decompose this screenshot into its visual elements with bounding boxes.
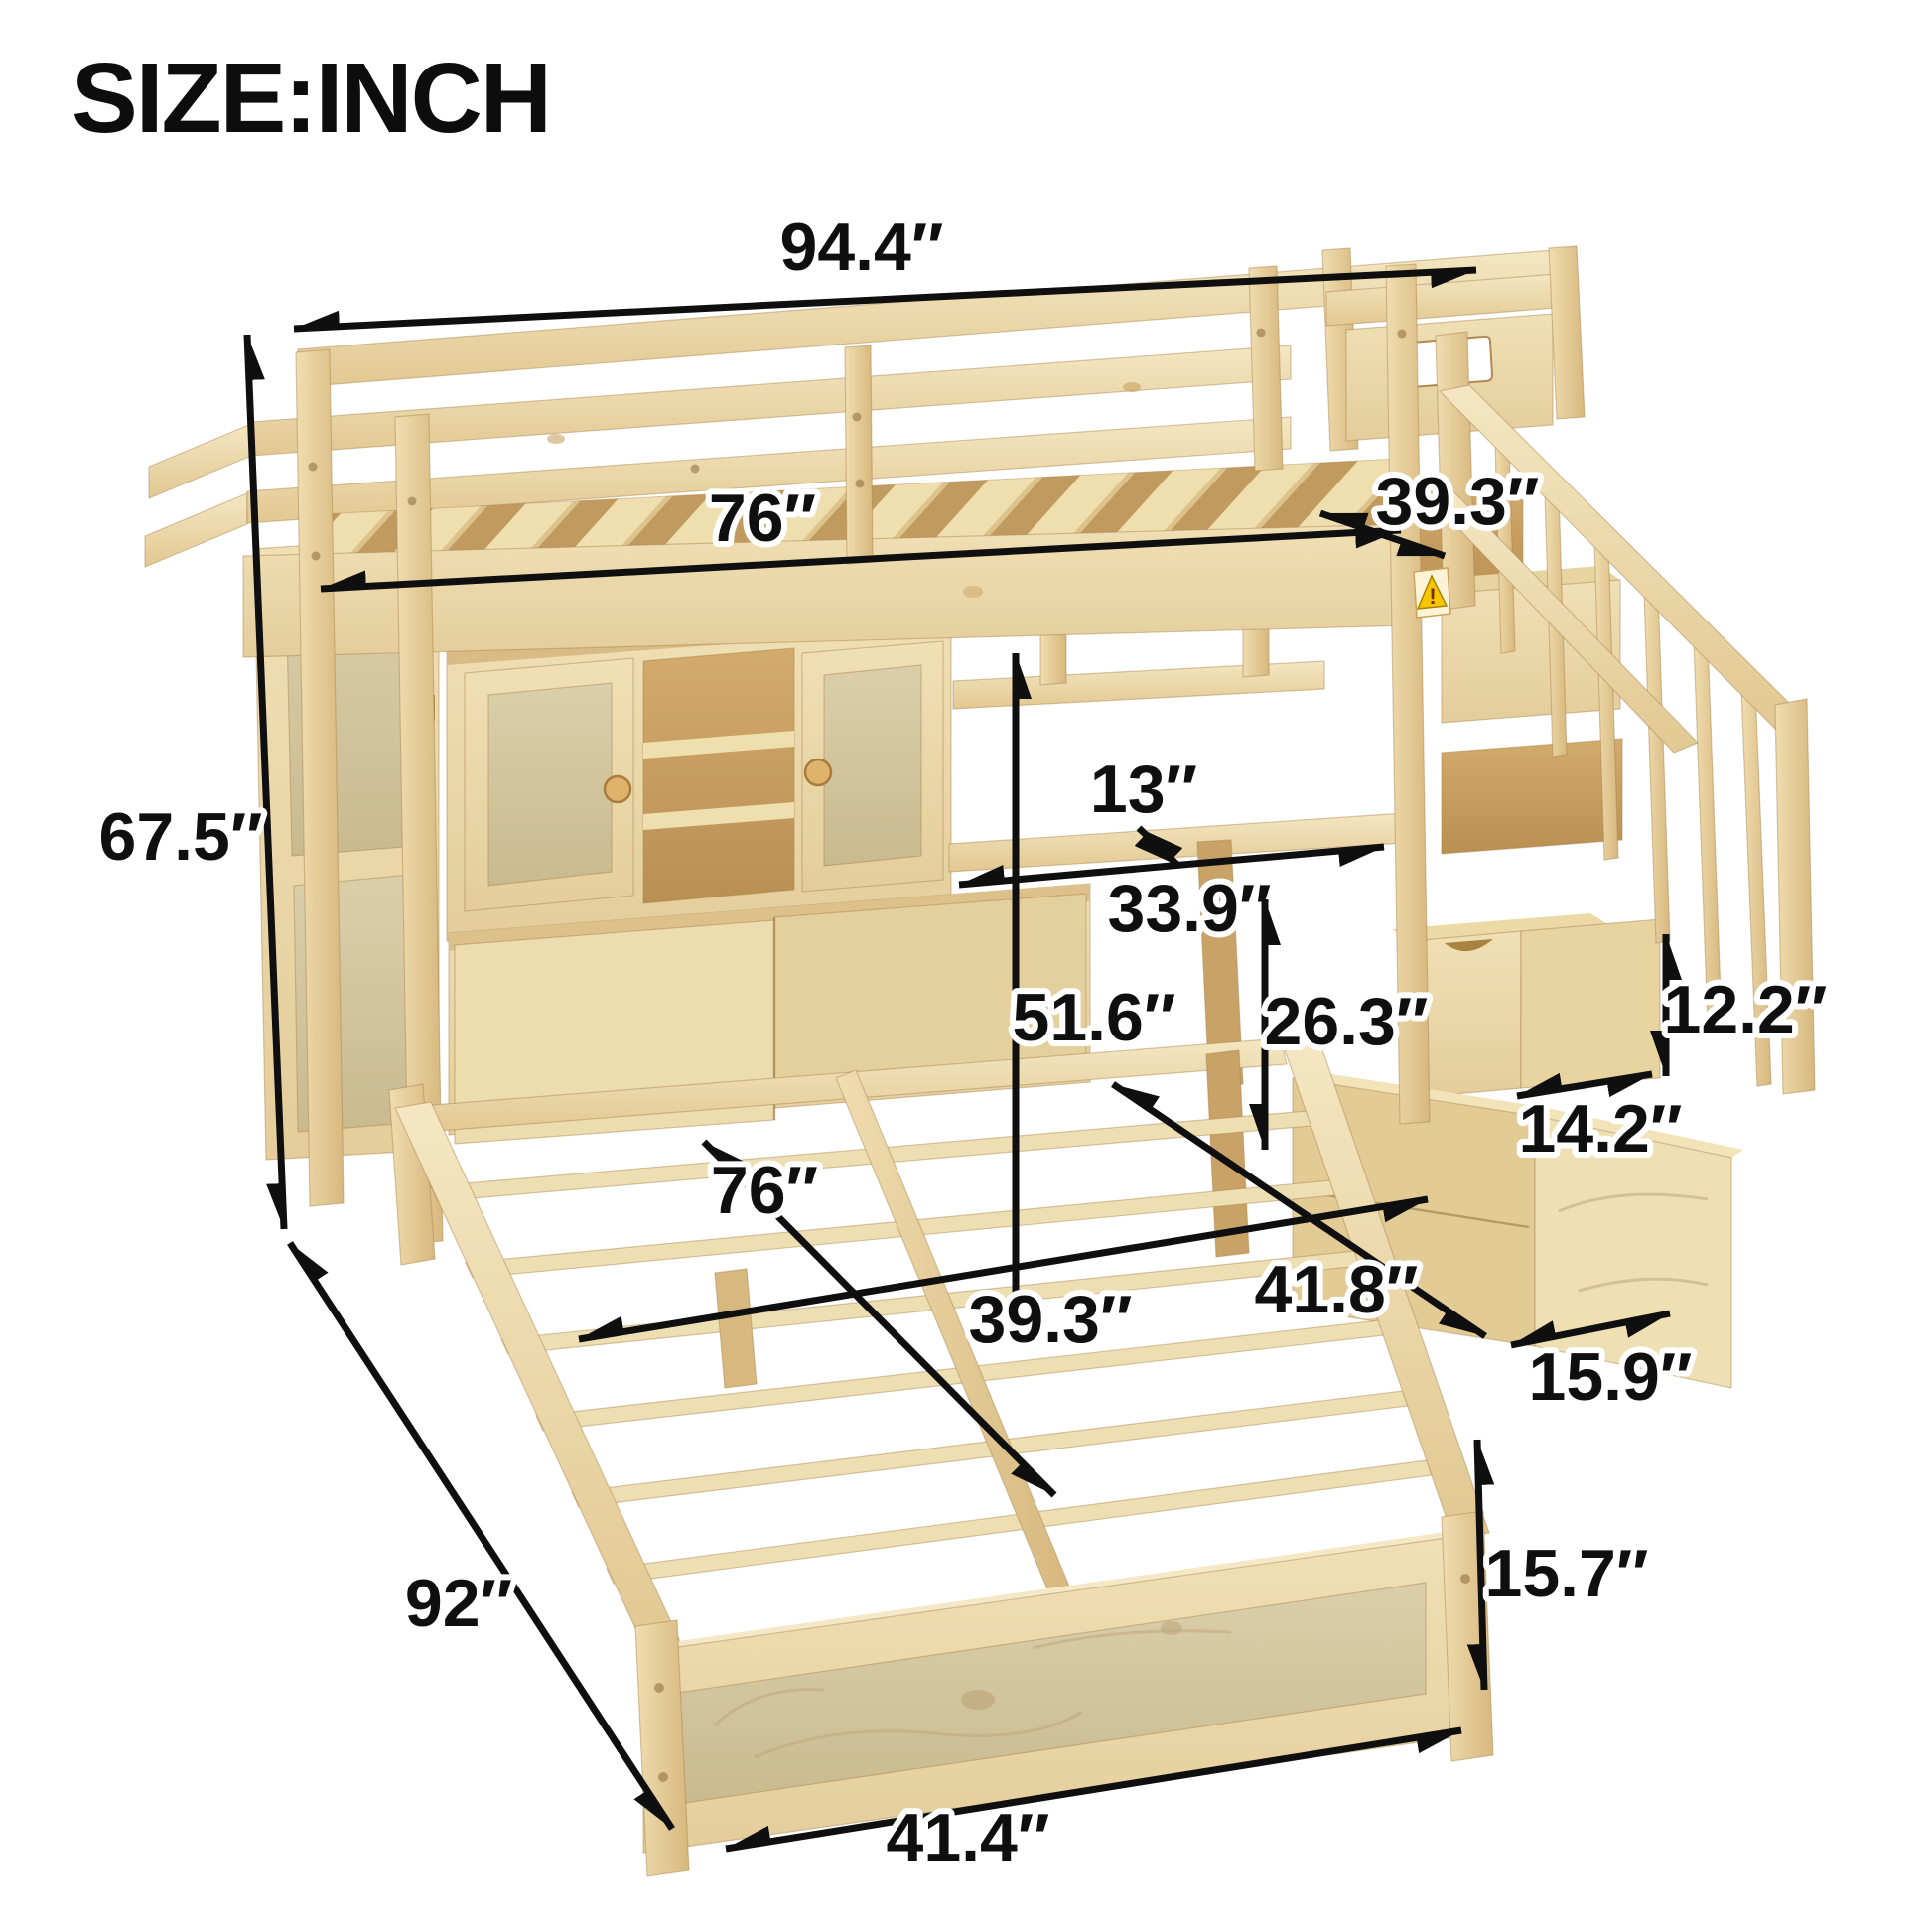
screw bbox=[408, 497, 417, 506]
loft-post-inner-right bbox=[1249, 266, 1283, 471]
dim-label: 33.9″ bbox=[1108, 871, 1272, 946]
dim-label: 76″ bbox=[709, 481, 816, 556]
hutch-cabinet bbox=[447, 610, 951, 941]
left-end-rail-upper bbox=[149, 424, 251, 498]
dim-label: 94.4″ bbox=[780, 209, 944, 285]
screw bbox=[654, 1683, 664, 1693]
dim-label: 15.9″ bbox=[1529, 1339, 1693, 1415]
wood-knot bbox=[547, 434, 565, 444]
left-end-rail-lower bbox=[145, 493, 247, 567]
dim-label: 39.3″ bbox=[969, 1282, 1133, 1357]
screw bbox=[658, 1772, 668, 1782]
screw bbox=[1398, 330, 1407, 339]
dim-lower-bed-height: 15.7″ bbox=[1477, 1440, 1648, 1690]
dim-label: 12.2″ bbox=[1664, 972, 1828, 1047]
screw bbox=[1257, 329, 1266, 338]
dim-label: 15.7″ bbox=[1485, 1536, 1649, 1611]
baluster bbox=[1694, 639, 1722, 1025]
dim-step-depth: 14.2″ bbox=[1517, 1074, 1682, 1167]
stair-step-riser bbox=[1521, 919, 1660, 1088]
dim-label: 41.8″ bbox=[1255, 1252, 1419, 1327]
screw bbox=[312, 552, 321, 561]
screw bbox=[853, 413, 862, 422]
page-title: SIZE:INCH bbox=[71, 43, 550, 154]
screw bbox=[691, 465, 700, 474]
size-diagram-page: SIZE:INCH bbox=[0, 0, 1932, 1932]
hutch-right-door-panel bbox=[824, 665, 921, 866]
dim-label: 76″ bbox=[711, 1153, 818, 1228]
wood-knot bbox=[963, 586, 983, 598]
dim-label: 14.2″ bbox=[1519, 1091, 1683, 1167]
hutch-open-cubby bbox=[643, 648, 794, 903]
hutch-left-door-panel bbox=[488, 683, 612, 886]
screw bbox=[856, 480, 865, 488]
dim-label: 41.4″ bbox=[887, 1800, 1050, 1875]
hutch-left-door-knob bbox=[605, 776, 630, 802]
screw bbox=[309, 463, 318, 472]
guard-center-stile bbox=[845, 345, 873, 564]
warning-glyph: ! bbox=[1429, 584, 1436, 609]
lower-bed-center-leg bbox=[715, 1269, 757, 1388]
screw bbox=[1460, 1574, 1470, 1584]
wood-knot bbox=[1123, 382, 1141, 392]
baluster bbox=[1644, 590, 1670, 943]
wood-knot bbox=[1161, 1621, 1182, 1635]
dim-label: 39.3″ bbox=[1376, 464, 1540, 539]
hutch-right-door-knob bbox=[805, 759, 831, 785]
dim-label: 67.5″ bbox=[99, 799, 263, 875]
bed-dimension-diagram: SIZE:INCH bbox=[0, 0, 1932, 1932]
dim-label: 51.6″ bbox=[1013, 980, 1176, 1055]
stair-open-gap bbox=[1442, 739, 1622, 854]
dim-label: 26.3″ bbox=[1265, 984, 1429, 1059]
dim-label: 13″ bbox=[1090, 752, 1197, 827]
warning-sticker: ! bbox=[1414, 568, 1450, 618]
landing-post-right bbox=[1549, 246, 1585, 419]
wood-knot bbox=[961, 1690, 995, 1710]
dim-label: 92″ bbox=[405, 1566, 512, 1641]
loft-bed-illustration: ! bbox=[145, 246, 1815, 1876]
